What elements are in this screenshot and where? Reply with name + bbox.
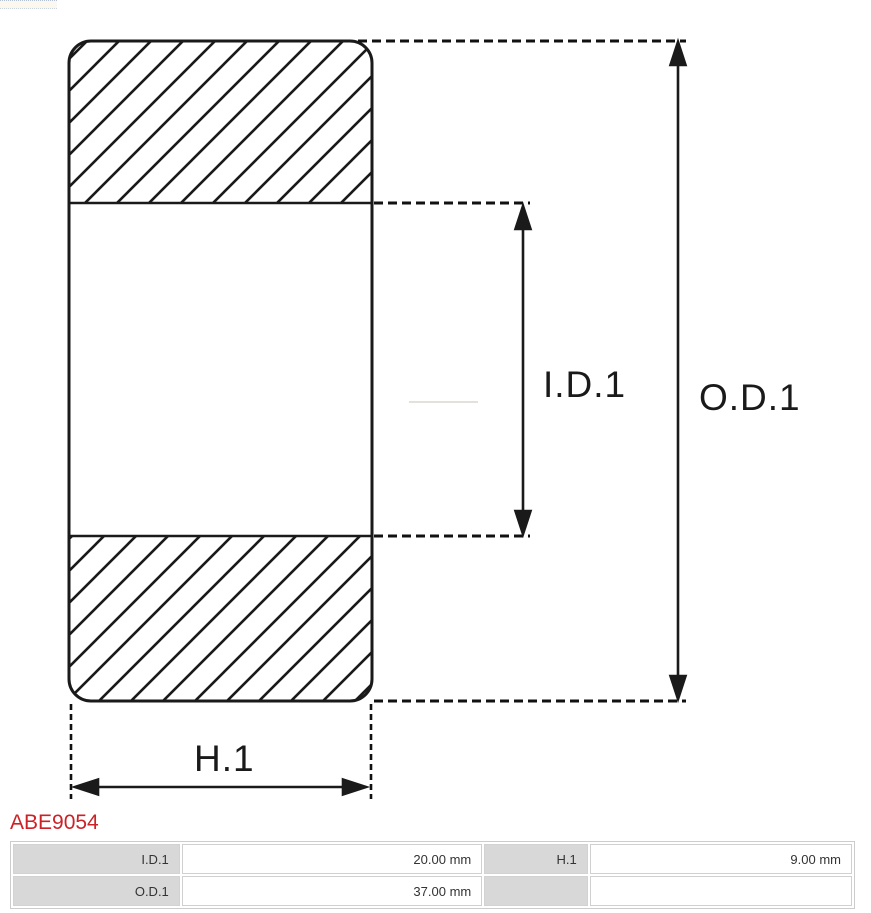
spec-label-cell [484, 876, 587, 906]
part-number-link[interactable]: ABE9054 [10, 810, 99, 835]
inner-diameter-arrow [516, 206, 531, 534]
spec-label-cell: I.D.1 [13, 844, 180, 874]
spec-row: I.D.1 20.00 mm H.1 9.00 mm [13, 844, 852, 874]
product-technical-drawing-page: I.D.1 O.D.1 H.1 ABE9054 I.D.1 20.00 mm H… [0, 0, 871, 913]
spec-label-cell: O.D.1 [13, 876, 180, 906]
spec-label-cell: H.1 [484, 844, 587, 874]
spec-table: I.D.1 20.00 mm H.1 9.00 mm O.D.1 37.00 m… [10, 841, 855, 909]
dim-label-inner-diameter: I.D.1 [543, 366, 626, 403]
spec-row: O.D.1 37.00 mm [13, 876, 852, 906]
technical-drawing: I.D.1 O.D.1 H.1 [0, 0, 871, 808]
hatched-bands [69, 41, 372, 701]
dim-label-outer-diameter: O.D.1 [699, 379, 801, 416]
spec-value-cell: 20.00 mm [182, 844, 482, 874]
dim-label-width: H.1 [194, 740, 255, 777]
spec-value-cell [590, 876, 852, 906]
spec-value-cell: 37.00 mm [182, 876, 482, 906]
spec-value-cell: 9.00 mm [590, 844, 852, 874]
width-arrow [75, 780, 366, 795]
outer-diameter-arrow [671, 42, 686, 699]
